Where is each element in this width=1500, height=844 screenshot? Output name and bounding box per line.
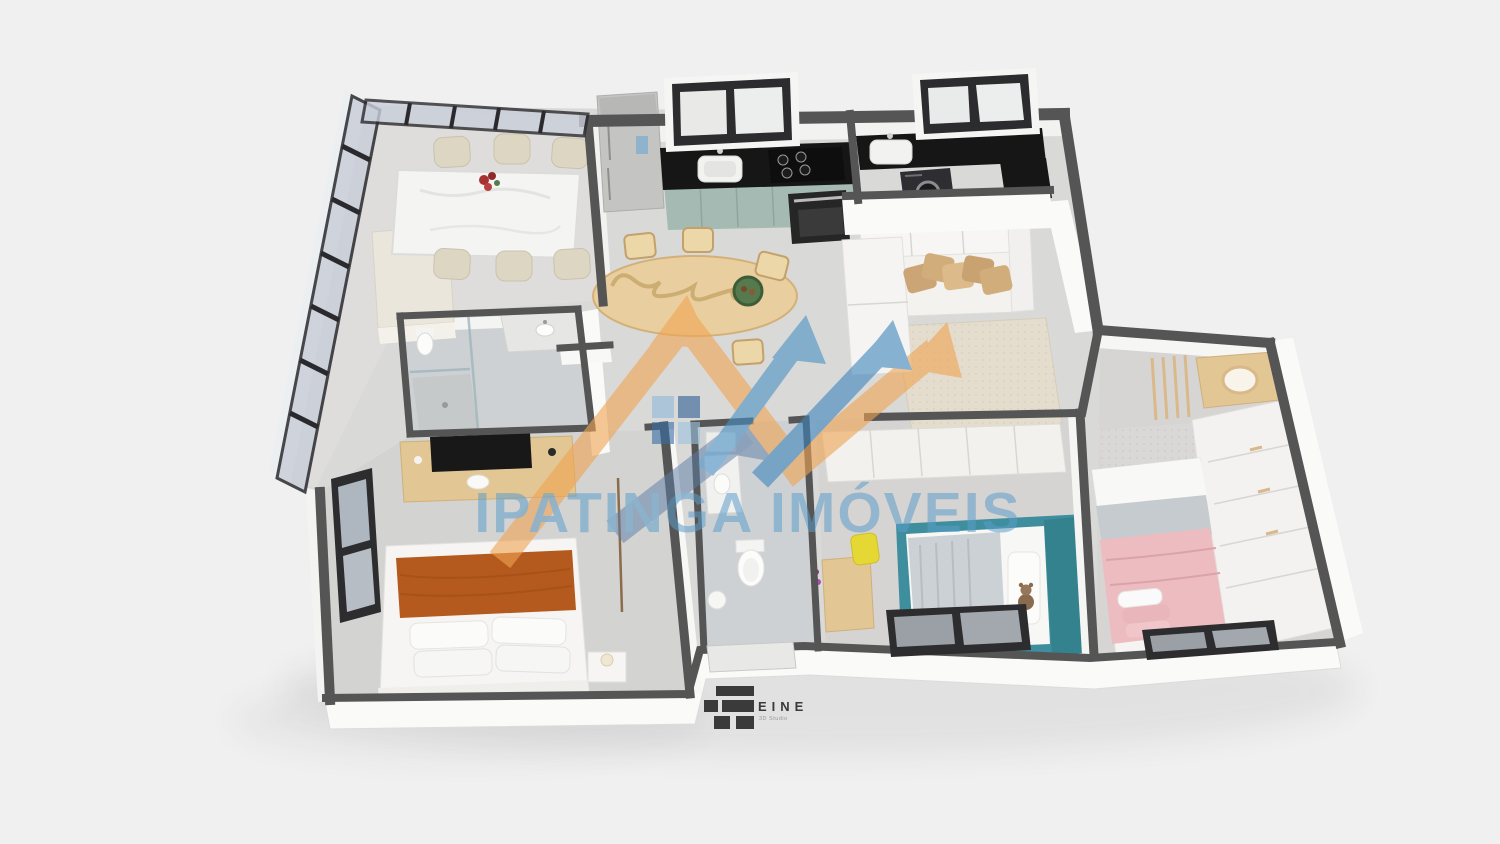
dining-chairs-front-row — [433, 248, 591, 281]
service-window — [912, 68, 1040, 140]
oven — [788, 190, 850, 244]
watermark-brand-text: IPATINGA IMÓVEIS — [474, 481, 1021, 545]
floorplan-scene: IPATINGA IMÓVEIS EINE 3D Studio — [0, 0, 1500, 844]
master-bed — [378, 538, 590, 710]
bathroom-window-ledge — [707, 642, 796, 672]
refrigerator — [597, 92, 664, 212]
vanity-desk — [1196, 352, 1280, 408]
round-mirror — [1223, 367, 1257, 393]
wardrobe — [822, 424, 1066, 482]
bedroom2-window — [886, 604, 1031, 657]
studio-logo-text: EINE — [758, 699, 808, 714]
tv-screen — [430, 433, 532, 472]
toilet-master — [416, 328, 434, 355]
desk — [822, 556, 874, 632]
real-estate-3d-floorplan-render: IPATINGA IMÓVEIS EINE 3D Studio — [0, 0, 1500, 844]
kitchen-window — [664, 72, 800, 152]
cooktop — [768, 147, 845, 183]
rust-throw-blanket — [396, 550, 576, 618]
fruit-bowl — [734, 277, 762, 305]
studio-logo-subtitle: 3D Studio — [759, 716, 788, 722]
fridge-display — [636, 136, 648, 154]
nightstand — [588, 652, 626, 682]
shower-drain — [708, 591, 726, 609]
dining-chairs-back-row — [433, 134, 589, 169]
marble-dining-table — [392, 170, 580, 258]
